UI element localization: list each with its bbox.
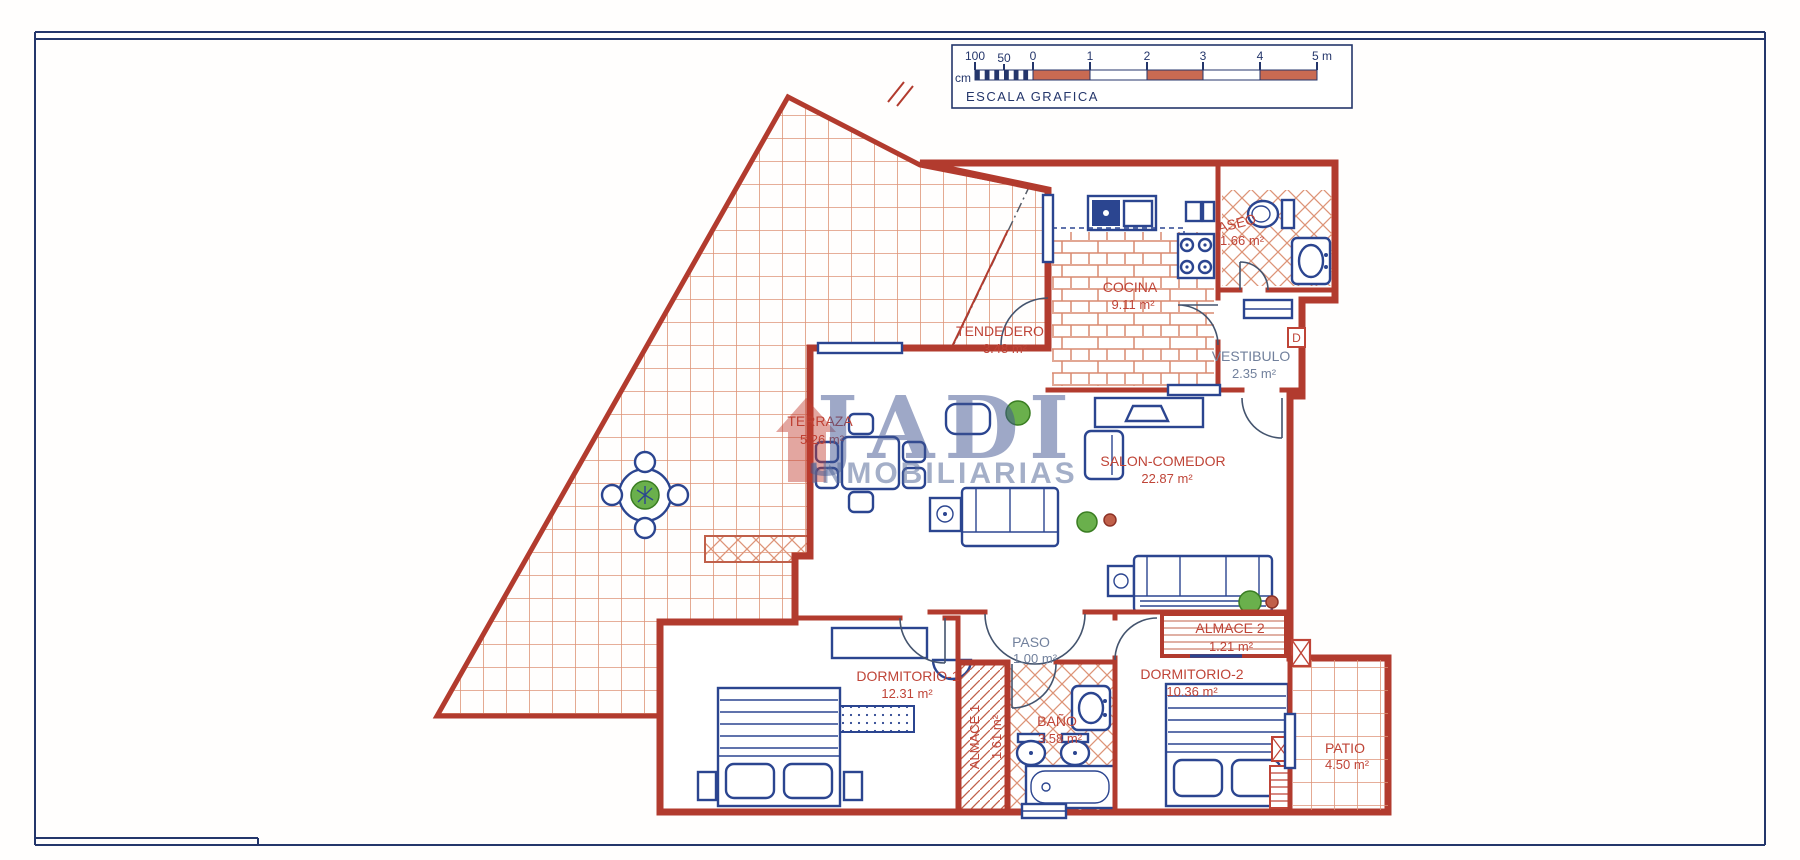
room-area-cocina: 9.11 m² bbox=[1111, 297, 1155, 312]
room-area-patio: 4.50 m² bbox=[1325, 757, 1370, 772]
scale-tick-4: 4 bbox=[1257, 49, 1264, 63]
floor-plan-canvas: 100 50 0 1 2 3 4 5 m cm ESCALA GRAFICA bbox=[0, 0, 1800, 860]
room-area-almacen2: 1.21 m² bbox=[1209, 639, 1254, 654]
room-label-cocina: COCINA bbox=[1103, 279, 1158, 295]
stove-icon bbox=[1178, 234, 1214, 278]
scale-tick-50: 50 bbox=[997, 51, 1011, 65]
washbasin-icon bbox=[1292, 238, 1330, 284]
nightstand bbox=[844, 772, 862, 800]
room-area-bano: 3.58 m² bbox=[1038, 731, 1083, 746]
room-label-bano: BAÑO bbox=[1037, 713, 1077, 729]
desk bbox=[832, 628, 927, 658]
room-label-salon: SALON-COMEDOR bbox=[1100, 453, 1225, 469]
scale-tick-100: 100 bbox=[965, 49, 985, 63]
room-label-almacen2: ALMACE 2 bbox=[1195, 620, 1264, 636]
room-area-tendedero: 3.48 m² bbox=[983, 341, 1028, 356]
room-label-vestibulo: VESTIBULO bbox=[1212, 348, 1291, 364]
room-label-dormitorio2: DORMITORIO-2 bbox=[1140, 666, 1243, 682]
room-label-patio: PATIO bbox=[1325, 740, 1365, 756]
window-kitchen-west bbox=[1043, 195, 1053, 262]
break-mark bbox=[888, 82, 913, 106]
room-label-dormitorio1: DORMITORIO-1 bbox=[856, 668, 959, 684]
kitchen-appliance bbox=[1186, 202, 1201, 221]
room-label-paso: PASO bbox=[1012, 634, 1050, 650]
tv-cabinet bbox=[1095, 398, 1203, 427]
scale-caption: ESCALA GRAFICA bbox=[966, 89, 1099, 104]
scale-tick-1: 1 bbox=[1087, 49, 1094, 63]
room-area-vestibulo: 2.35 m² bbox=[1232, 366, 1277, 381]
watermark-subtitle: INMOBILIARIAS bbox=[810, 457, 1077, 490]
scale-tick-0: 0 bbox=[1030, 49, 1037, 63]
plant-icon bbox=[1077, 512, 1097, 532]
flower-icon bbox=[1104, 514, 1116, 526]
scale-unit-label: cm bbox=[955, 71, 971, 85]
bed-double bbox=[718, 688, 840, 806]
side-unit bbox=[1108, 566, 1134, 596]
plan-sheet: 100 50 0 1 2 3 4 5 m cm ESCALA GRAFICA bbox=[0, 0, 1800, 860]
scale-tick-5m: 5 m bbox=[1312, 49, 1332, 63]
room-area-almacen1: 1.61 m² bbox=[989, 714, 1004, 759]
bathtub-icon bbox=[1026, 766, 1114, 808]
pillow bbox=[726, 764, 774, 798]
washbasin-icon bbox=[1072, 686, 1110, 730]
nightstand bbox=[698, 772, 716, 800]
window-dorm2-patio bbox=[1285, 714, 1295, 768]
room-label-almacen1: ALMACE 1 bbox=[967, 705, 982, 769]
window-salon-north bbox=[1168, 385, 1220, 395]
flower-icon bbox=[1266, 596, 1278, 608]
watermark: JADI INMOBILIARIAS bbox=[776, 378, 1079, 490]
room-area-paso: 1.00 m² bbox=[1013, 651, 1058, 666]
kitchen-appliance bbox=[1203, 202, 1214, 221]
room-area-salon: 22.87 m² bbox=[1141, 471, 1193, 486]
graphic-scale: 100 50 0 1 2 3 4 5 m cm ESCALA GRAFICA bbox=[952, 45, 1352, 108]
scale-tick-2: 2 bbox=[1144, 49, 1151, 63]
patio-floor bbox=[1293, 660, 1388, 810]
room-area-aseo: 1.66 m² bbox=[1220, 233, 1265, 248]
room-label-tendedero: TENDEDERO bbox=[956, 323, 1044, 339]
room-area-dormitorio1: 12.31 m² bbox=[881, 686, 933, 701]
room-area-dormitorio2: 10.36 m² bbox=[1166, 684, 1218, 699]
scale-meter-bar bbox=[1033, 70, 1317, 80]
window-salon-west bbox=[818, 343, 902, 353]
pillow bbox=[1174, 760, 1222, 796]
kitchen-sink-basin-right bbox=[1124, 201, 1152, 226]
pillow bbox=[784, 764, 832, 798]
wall-unit-icon bbox=[1292, 640, 1310, 666]
dresser bbox=[834, 706, 914, 732]
scale-tick-3: 3 bbox=[1200, 49, 1207, 63]
electrical-panel-label: D bbox=[1292, 331, 1301, 345]
